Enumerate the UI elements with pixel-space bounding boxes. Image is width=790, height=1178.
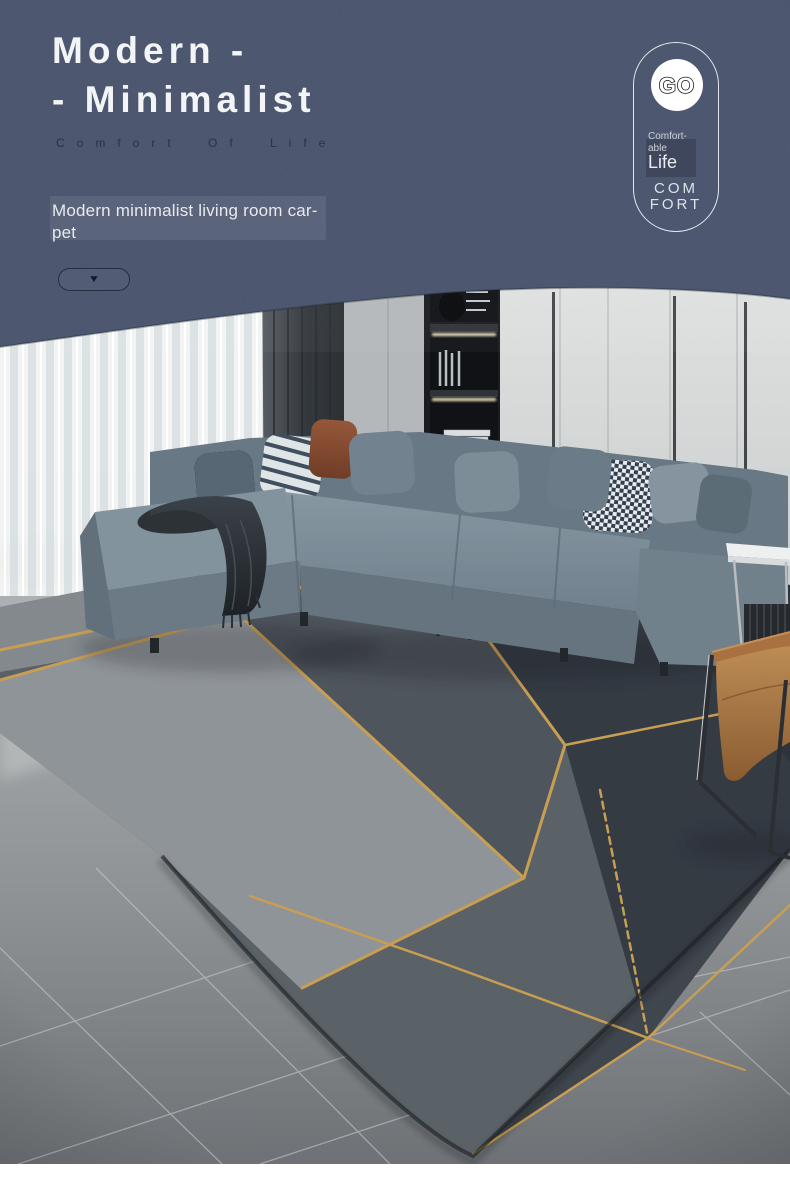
bottom-margin bbox=[0, 1164, 790, 1178]
photo-vignette bbox=[0, 240, 790, 1166]
title-line-1: Modern - bbox=[52, 30, 248, 71]
product-description: Modern minimalist living room car-pet bbox=[52, 200, 352, 244]
badge-comfort-line-2: FORT bbox=[650, 196, 703, 213]
badge-life-label: Life bbox=[648, 151, 677, 173]
header-section: Modern -- Minimalist Comfort Of Life Mod… bbox=[0, 0, 790, 352]
badge-comfort-line-1: COM bbox=[654, 180, 698, 197]
product-banner: Modern -- Minimalist Comfort Of Life Mod… bbox=[0, 0, 790, 1178]
tagline: Comfort Of Life bbox=[56, 136, 337, 150]
go-logo-text: GO bbox=[659, 73, 695, 98]
go-logo: GO bbox=[651, 59, 703, 111]
badge-comfort-label: COMFORT bbox=[634, 181, 718, 213]
description-line-1: Modern minimalist living room car- bbox=[52, 201, 318, 220]
expand-button[interactable]: ▼ bbox=[58, 268, 130, 291]
chevron-down-icon: ▼ bbox=[88, 275, 100, 285]
description-line-2: pet bbox=[52, 223, 76, 242]
title-line-2: - Minimalist bbox=[52, 79, 316, 120]
brand-badge: GO Comfort-able Life COMFORT bbox=[633, 42, 719, 232]
page-title: Modern -- Minimalist bbox=[52, 26, 316, 124]
badge-caption-line-1: Comfort- bbox=[648, 131, 687, 142]
